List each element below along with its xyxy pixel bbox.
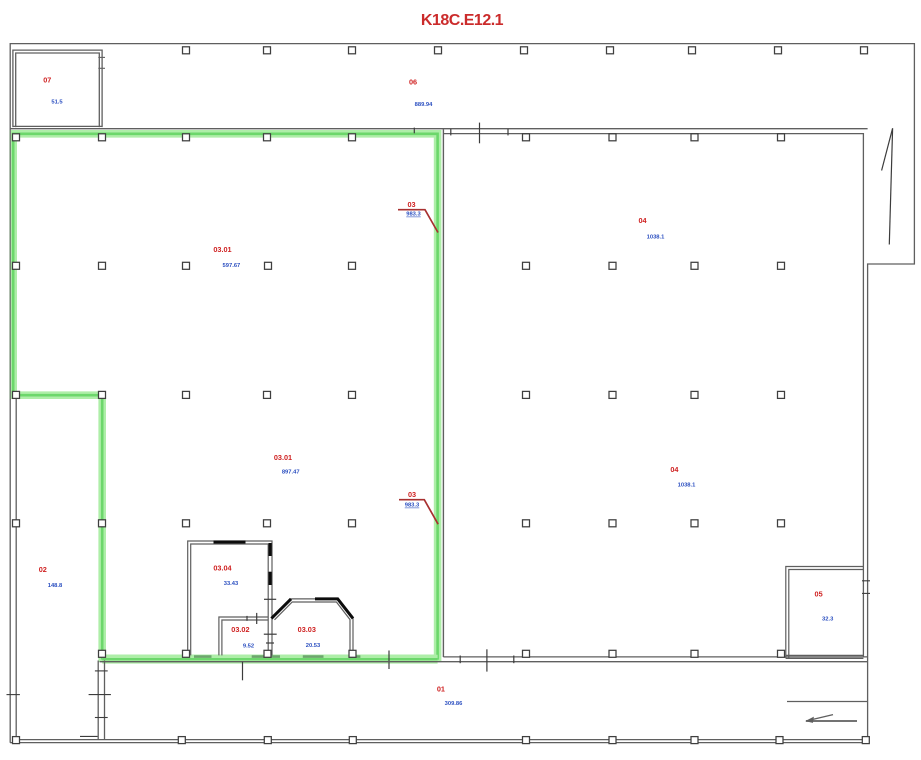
- svg-text:K18C.E12.1: K18C.E12.1: [421, 12, 504, 29]
- svg-text:33.43: 33.43: [224, 581, 239, 587]
- svg-text:03.01: 03.01: [274, 453, 292, 462]
- svg-text:983.3: 983.3: [406, 212, 421, 218]
- svg-text:06: 06: [409, 78, 417, 87]
- svg-text:01: 01: [437, 684, 445, 693]
- svg-text:51.5: 51.5: [51, 99, 63, 105]
- svg-text:04: 04: [670, 465, 679, 474]
- svg-text:03.04: 03.04: [213, 564, 232, 573]
- svg-text:03.03: 03.03: [298, 625, 316, 634]
- svg-text:897.47: 897.47: [282, 470, 300, 476]
- svg-text:02: 02: [39, 565, 47, 574]
- svg-text:148.8: 148.8: [48, 583, 63, 589]
- svg-text:597.67: 597.67: [223, 263, 241, 269]
- svg-text:03.01: 03.01: [213, 245, 231, 254]
- svg-text:889.94: 889.94: [415, 102, 434, 108]
- svg-text:32.3: 32.3: [822, 617, 834, 623]
- svg-text:309.86: 309.86: [445, 701, 464, 707]
- svg-text:03: 03: [407, 200, 415, 209]
- svg-text:1038.1: 1038.1: [678, 483, 697, 489]
- svg-text:07: 07: [43, 76, 51, 85]
- svg-text:03.02: 03.02: [231, 625, 249, 634]
- svg-text:04: 04: [638, 216, 647, 225]
- svg-text:05: 05: [815, 589, 823, 598]
- svg-text:03: 03: [408, 490, 416, 499]
- svg-text:1038.1: 1038.1: [647, 234, 666, 240]
- svg-text:20.53: 20.53: [306, 643, 321, 649]
- svg-text:983.3: 983.3: [405, 503, 420, 509]
- svg-text:9.52: 9.52: [243, 644, 254, 650]
